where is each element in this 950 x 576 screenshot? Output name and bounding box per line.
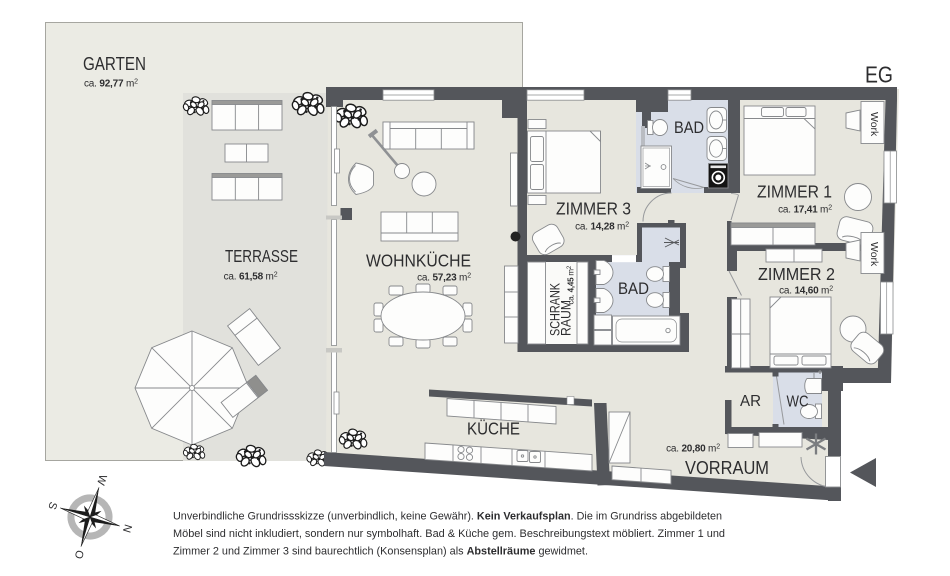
svg-text:WC: WC <box>787 394 809 411</box>
svg-text:BAD: BAD <box>618 279 649 298</box>
svg-text:AR: AR <box>740 393 761 410</box>
svg-text:ca. 4,45 m2: ca. 4,45 m2 <box>567 265 576 304</box>
svg-text:VORRAUM: VORRAUM <box>685 457 769 478</box>
svg-text:KÜCHE: KÜCHE <box>467 419 520 439</box>
svg-text:ca. 14,28 m2: ca. 14,28 m2 <box>575 222 629 233</box>
svg-text:WOHNKÜCHE: WOHNKÜCHE <box>366 251 471 271</box>
svg-text:TERRASSE: TERRASSE <box>225 246 298 266</box>
svg-text:ca. 61,58 m2: ca. 61,58 m2 <box>224 272 278 283</box>
svg-text:ca. 20,80 m2: ca. 20,80 m2 <box>666 444 720 455</box>
svg-text:ca. 17,41 m2: ca. 17,41 m2 <box>778 205 832 216</box>
svg-text:ZIMMER 2: ZIMMER 2 <box>758 264 835 284</box>
svg-text:ZIMMER 3: ZIMMER 3 <box>556 199 631 219</box>
svg-text:ca. 57,23 m2: ca. 57,23 m2 <box>417 273 471 284</box>
svg-text:ca. 14,60 m2: ca. 14,60 m2 <box>779 286 833 297</box>
svg-text:Zimmer 2 und Zimmer 3 sind bau: Zimmer 2 und Zimmer 3 sind baurechtlich … <box>173 546 588 558</box>
svg-text:Unverbindliche Grundrissskizze: Unverbindliche Grundrissskizze (unverbin… <box>173 511 722 523</box>
svg-text:Work: Work <box>868 112 880 137</box>
svg-text:Work: Work <box>868 242 880 267</box>
svg-text:ZIMMER 1: ZIMMER 1 <box>757 182 832 202</box>
svg-text:EG: EG <box>865 62 893 88</box>
svg-text:GARTEN: GARTEN <box>83 54 146 74</box>
svg-text:ca. 92,77 m2: ca. 92,77 m2 <box>84 79 138 90</box>
svg-text:BAD: BAD <box>674 118 704 137</box>
svg-text:Möbel sind nicht inkludiert, s: Möbel sind nicht inkludiert, sondern nur… <box>173 528 725 540</box>
